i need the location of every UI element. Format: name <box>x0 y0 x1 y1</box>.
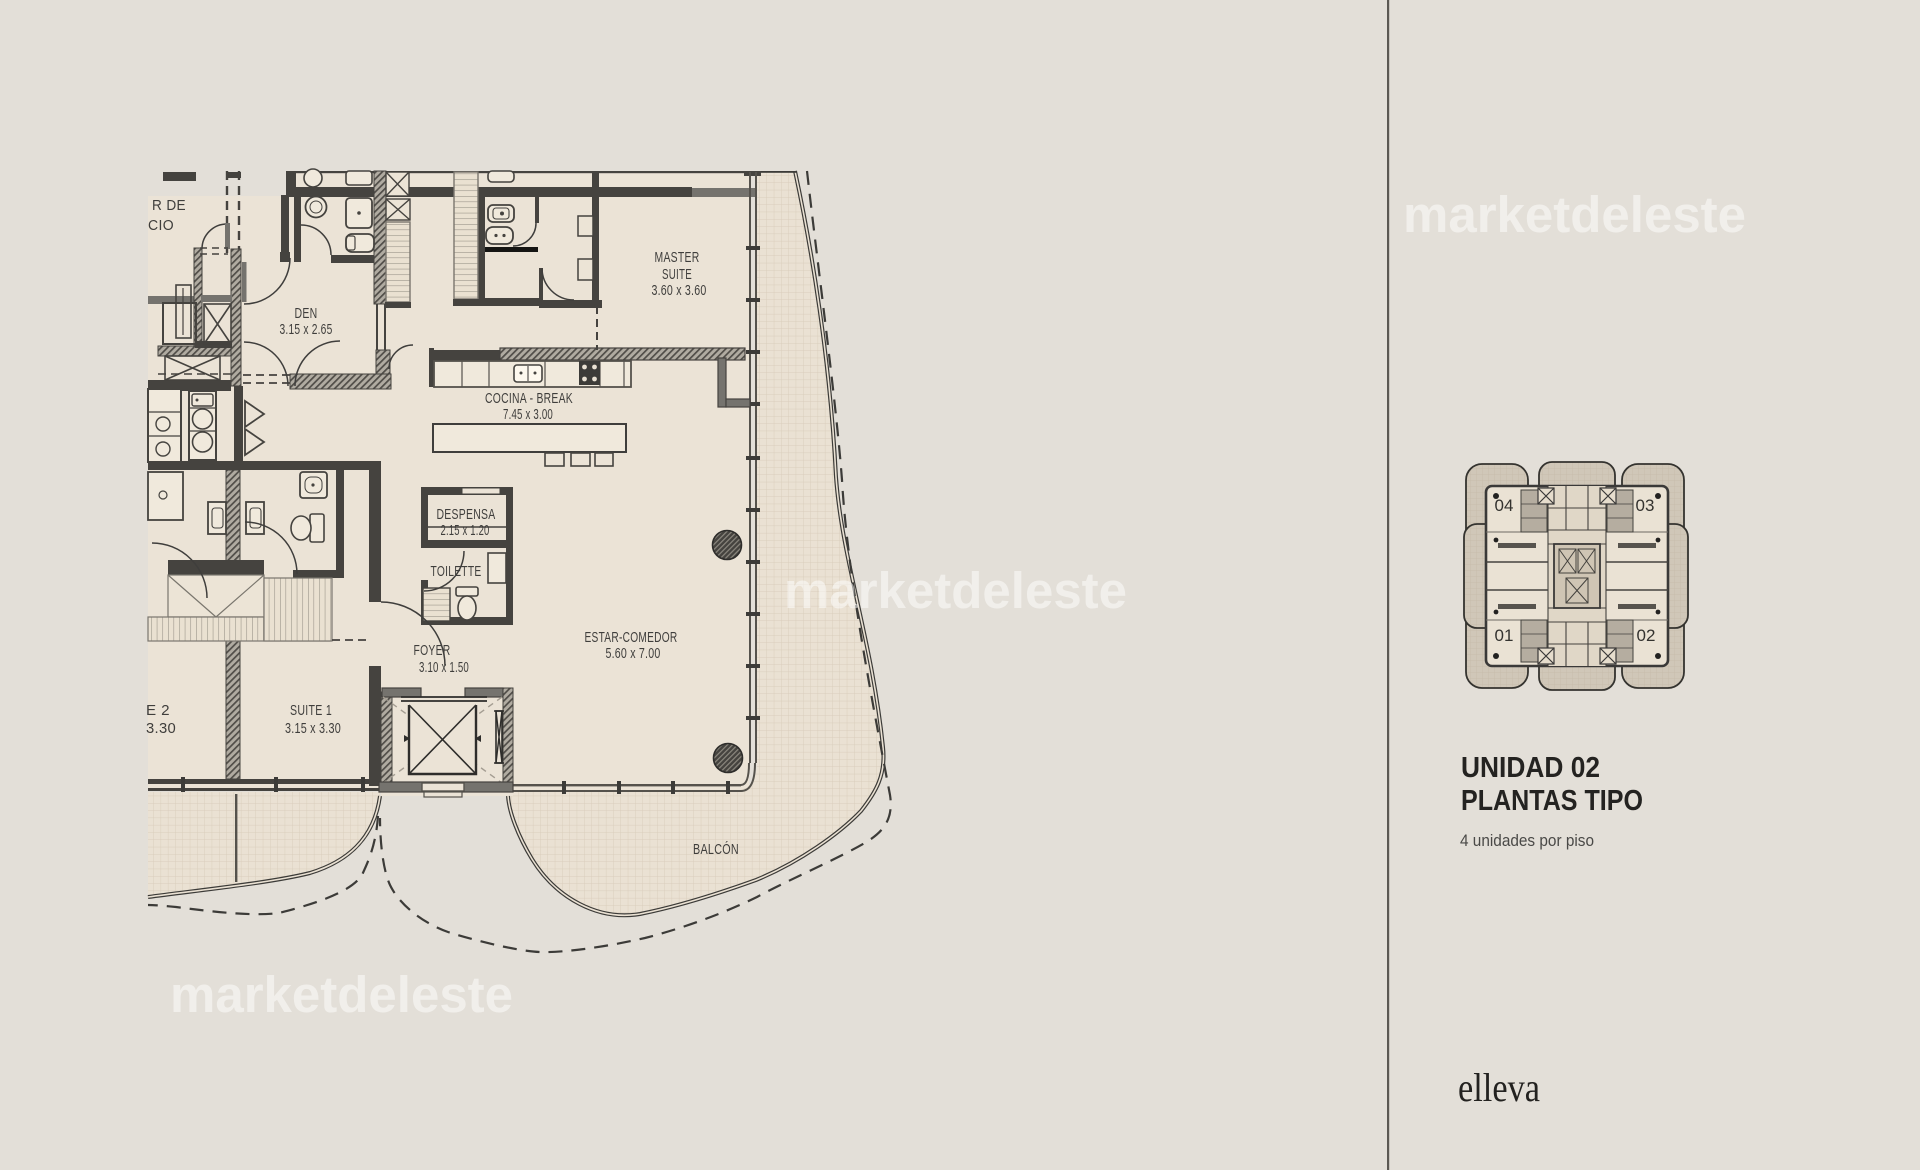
svg-text:TOILETTE: TOILETTE <box>431 563 482 580</box>
svg-text:BALCÓN: BALCÓN <box>693 841 739 858</box>
svg-text:3.30: 3.30 <box>146 721 176 737</box>
svg-text:02: 02 <box>1637 626 1656 645</box>
svg-text:4 unidades por piso: 4 unidades por piso <box>1460 832 1594 850</box>
svg-text:04: 04 <box>1495 496 1514 515</box>
svg-text:01: 01 <box>1495 626 1514 645</box>
svg-text:DESPENSA: DESPENSA <box>437 506 496 523</box>
svg-text:3.15 x 2.65: 3.15 x 2.65 <box>280 322 333 338</box>
svg-text:3.10 x 1.50: 3.10 x 1.50 <box>419 660 469 676</box>
svg-text:MASTER: MASTER <box>655 249 700 266</box>
svg-text:CIO: CIO <box>148 217 174 234</box>
svg-text:7.45 x 3.00: 7.45 x 3.00 <box>503 407 553 423</box>
svg-text:PLANTAS TIPO: PLANTAS TIPO <box>1461 785 1643 817</box>
svg-text:FOYER: FOYER <box>414 642 451 659</box>
svg-text:3.60 x 3.60: 3.60 x 3.60 <box>652 283 707 299</box>
svg-text:E 2: E 2 <box>146 702 170 719</box>
svg-text:marketdeleste: marketdeleste <box>1403 186 1746 243</box>
svg-text:ESTAR-COMEDOR: ESTAR-COMEDOR <box>585 629 678 646</box>
svg-text:2.15 x 1.20: 2.15 x 1.20 <box>441 523 490 539</box>
svg-text:3.15 x 3.30: 3.15 x 3.30 <box>285 721 341 737</box>
svg-text:SUITE 1: SUITE 1 <box>290 702 332 719</box>
svg-text:marketdeleste: marketdeleste <box>784 562 1127 619</box>
svg-text:COCINA - BREAK: COCINA - BREAK <box>485 390 573 407</box>
svg-text:elleva: elleva <box>1458 1065 1540 1110</box>
svg-text:5.60 x 7.00: 5.60 x 7.00 <box>606 646 661 662</box>
svg-text:R DE: R DE <box>152 197 186 214</box>
svg-text:marketdeleste: marketdeleste <box>170 966 513 1023</box>
svg-text:DEN: DEN <box>295 305 318 322</box>
svg-text:SUITE: SUITE <box>662 266 692 283</box>
svg-text:UNIDAD 02: UNIDAD 02 <box>1461 752 1600 784</box>
svg-text:03: 03 <box>1636 496 1655 515</box>
